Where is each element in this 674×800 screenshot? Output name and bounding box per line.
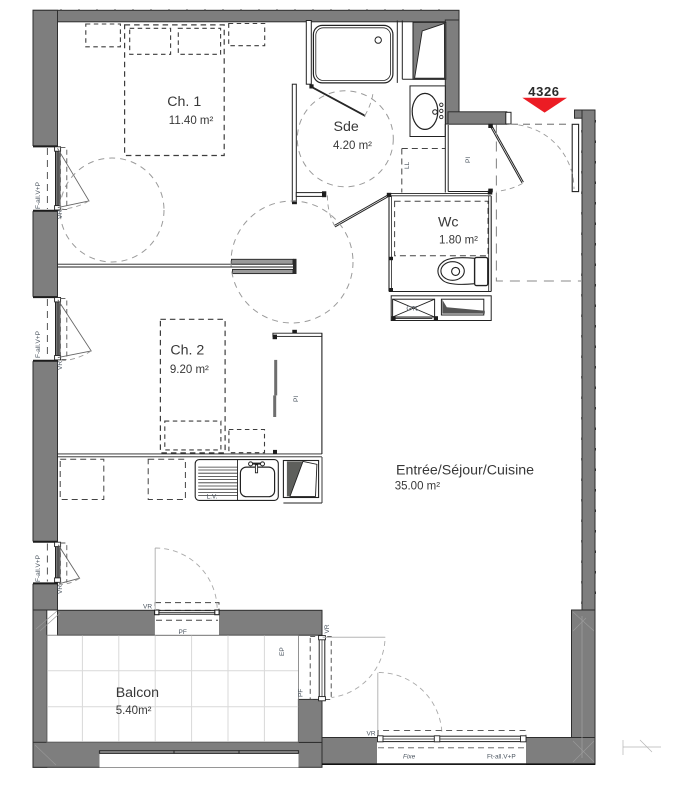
svg-text:PF: PF: [179, 629, 187, 636]
svg-text:GTL: GTL: [406, 306, 419, 313]
svg-text:F-all.V+P: F-all.V+P: [35, 331, 42, 358]
svg-text:VR: VR: [57, 210, 64, 219]
svg-text:VR: VR: [143, 604, 152, 611]
svg-text:Ch. 2: Ch. 2: [170, 342, 204, 358]
svg-text:EP: EP: [279, 647, 286, 656]
svg-text:Sde: Sde: [334, 119, 359, 135]
svg-text:LL: LL: [404, 161, 411, 169]
svg-text:Ft-all.V+P: Ft-all.V+P: [487, 754, 516, 761]
svg-text:Ch. 1: Ch. 1: [167, 94, 201, 110]
svg-text:9.20 m²: 9.20 m²: [170, 364, 209, 376]
svg-text:PI: PI: [465, 157, 472, 163]
svg-text:4.20 m²: 4.20 m²: [333, 140, 372, 152]
svg-text:VR: VR: [57, 361, 64, 370]
svg-text:Entrée/Séjour/Cuisine: Entrée/Séjour/Cuisine: [396, 463, 534, 479]
svg-text:VR: VR: [324, 624, 331, 633]
svg-text:PF: PF: [298, 689, 305, 697]
svg-text:5.40m²: 5.40m²: [116, 705, 152, 717]
svg-text:Wc: Wc: [438, 215, 459, 231]
svg-text:L.V.: L.V.: [207, 494, 218, 501]
svg-text:1.80 m²: 1.80 m²: [439, 234, 478, 246]
svg-text:F-all.V+P: F-all.V+P: [35, 182, 42, 209]
svg-text:VR: VR: [57, 585, 64, 594]
svg-text:Balcon: Balcon: [116, 685, 159, 701]
svg-text:35.00 m²: 35.00 m²: [395, 481, 441, 493]
svg-text:11.40 m²: 11.40 m²: [169, 115, 214, 127]
svg-text:F-all.V+P: F-all.V+P: [35, 555, 42, 582]
svg-text:VR: VR: [367, 731, 376, 738]
svg-text:4326: 4326: [528, 84, 559, 99]
svg-text:Fixe: Fixe: [403, 754, 416, 761]
svg-text:PI: PI: [293, 396, 300, 402]
